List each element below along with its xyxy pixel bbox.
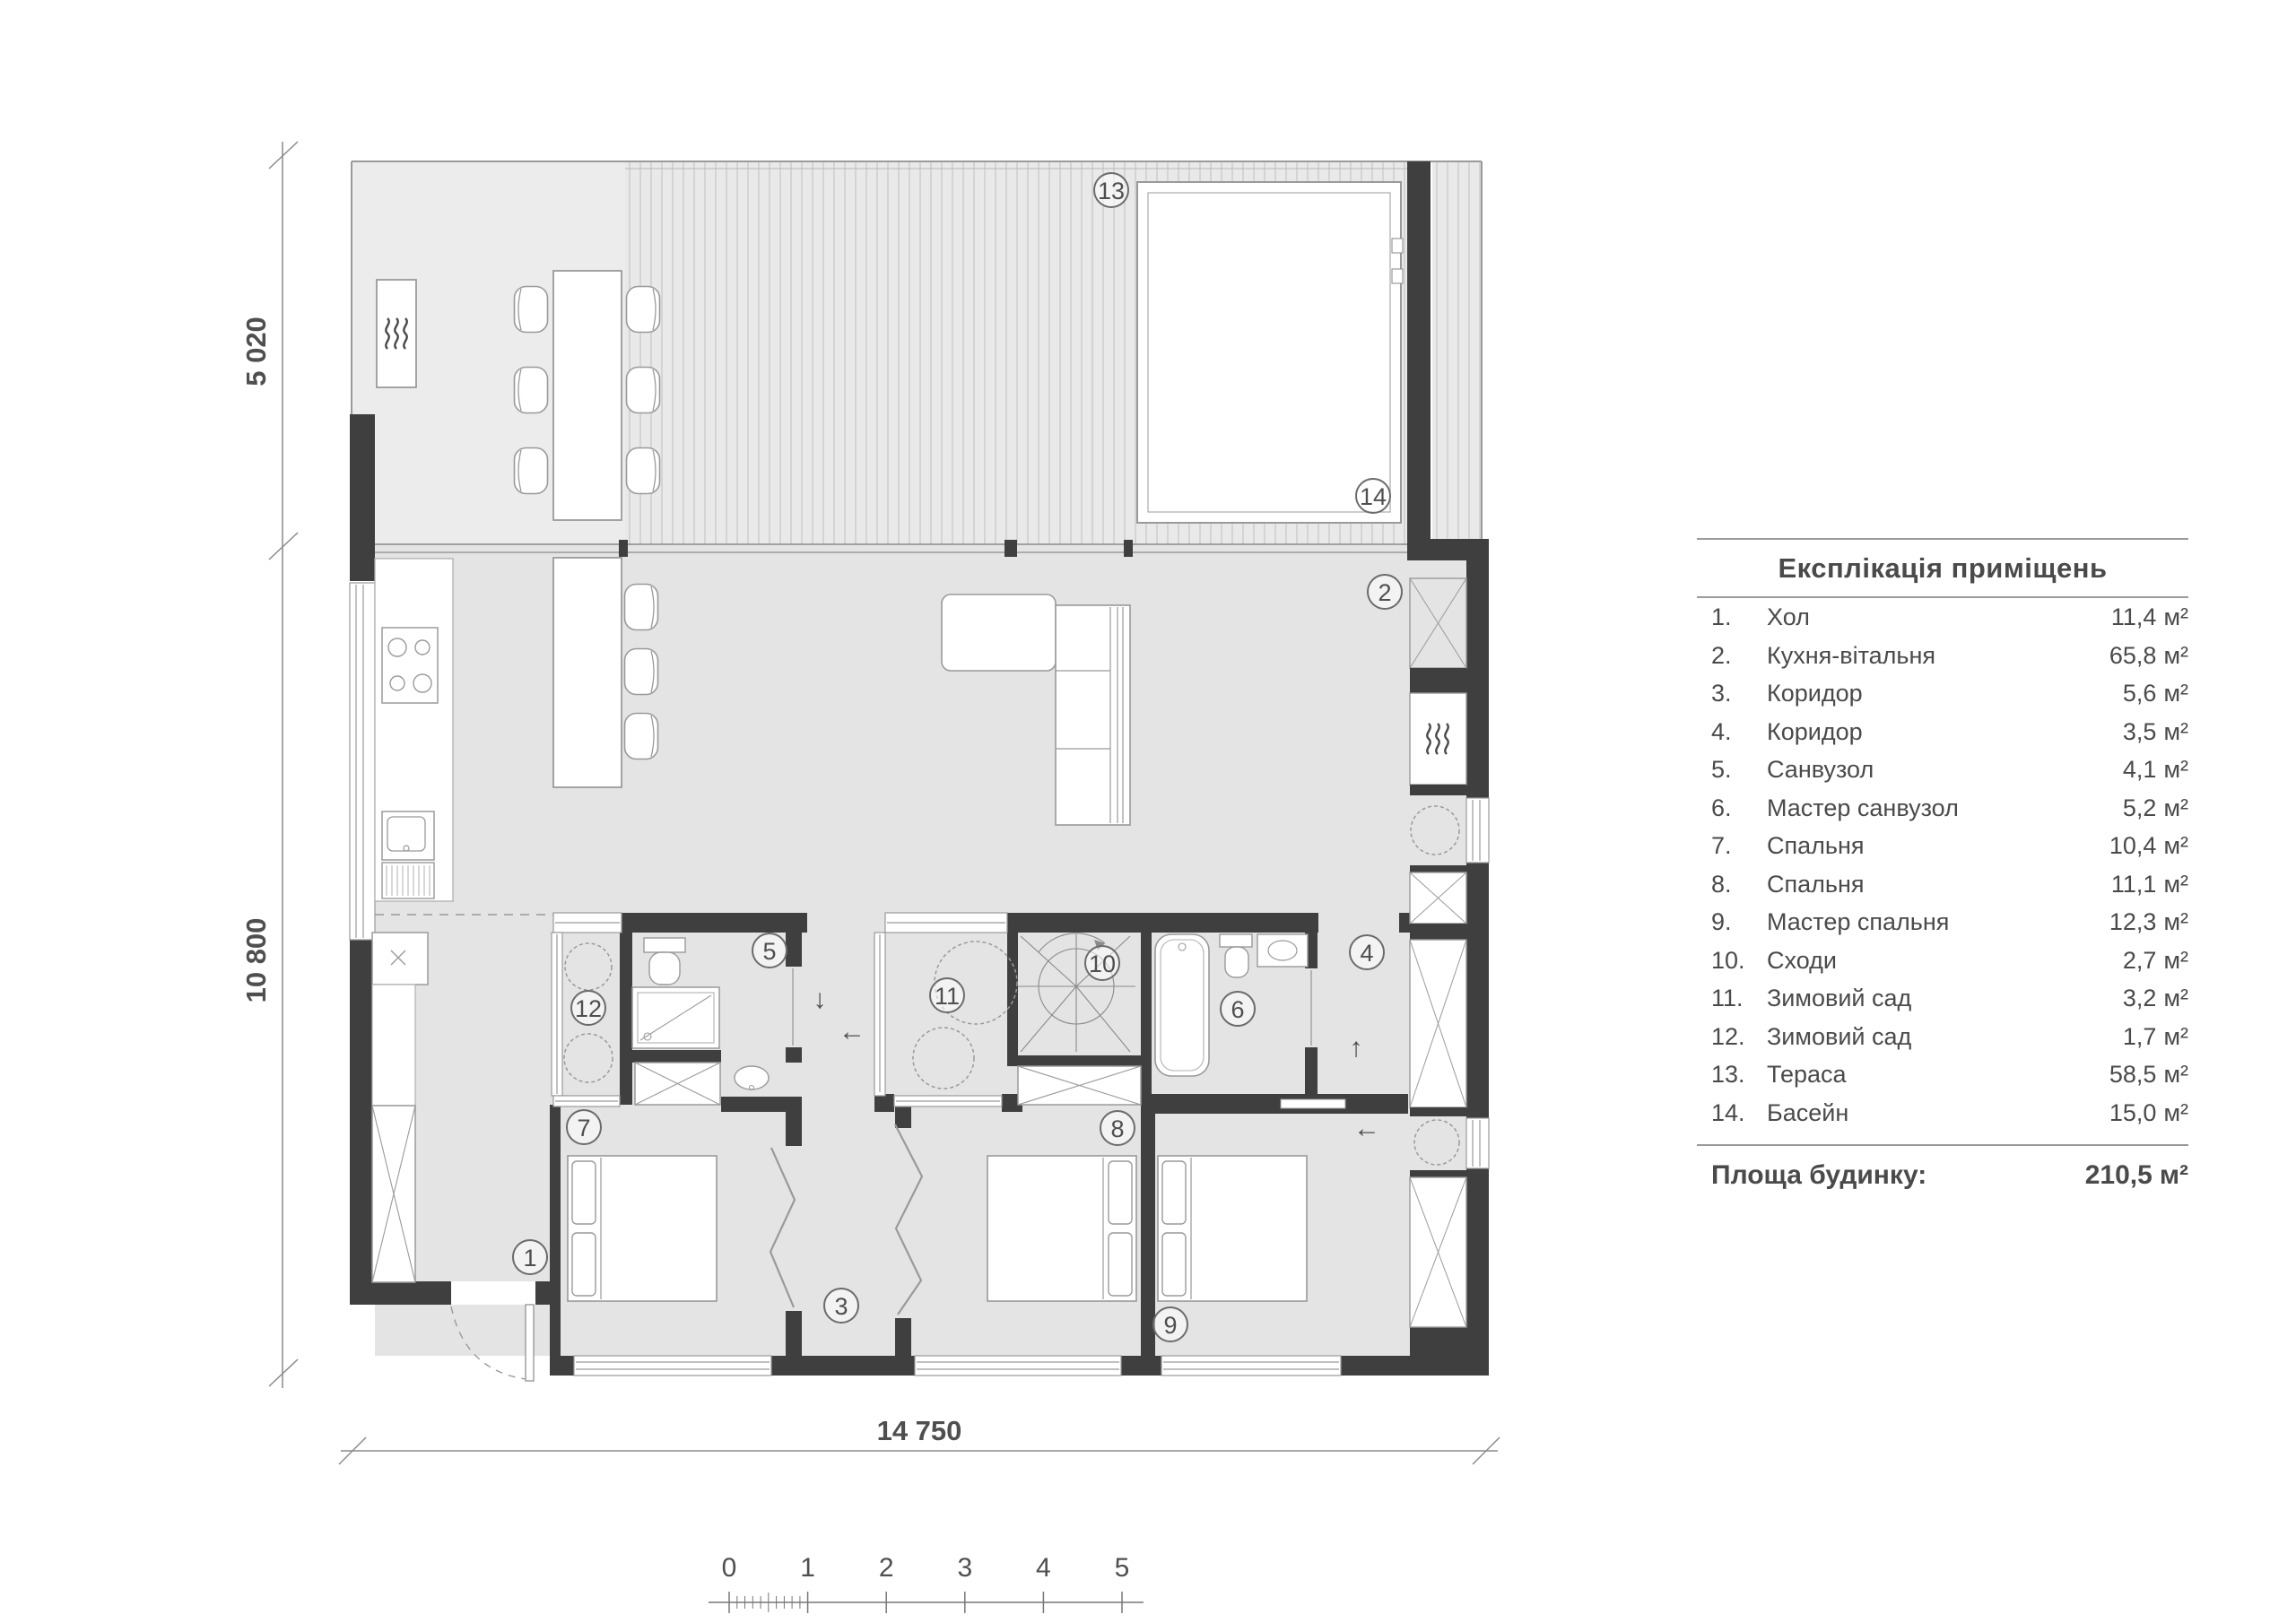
svg-text:↑: ↑ bbox=[1350, 1033, 1363, 1063]
legend-row: 1.Хол11,4м² bbox=[1697, 603, 2188, 642]
svg-text:4: 4 bbox=[1036, 1553, 1051, 1583]
floor-plan-sheet: ↓ ← ↑ ← 1 2 3 4 5 6 7 8 9 10 11 12 13 14… bbox=[0, 0, 2296, 1623]
svg-text:4: 4 bbox=[1360, 940, 1373, 967]
legend-row: 3.Коридор5,6м² bbox=[1697, 680, 2188, 718]
legend-row: 14.Басейн15,0м² bbox=[1697, 1099, 2188, 1138]
room-label-1: 1 bbox=[513, 1240, 547, 1274]
dim-label-5020: 5 020 bbox=[240, 317, 272, 386]
svg-text:5: 5 bbox=[762, 938, 776, 965]
kitchen-counter bbox=[375, 559, 453, 901]
legend-row: 8.Спальня11,1м² bbox=[1697, 871, 2188, 909]
legend-row: 5.Санвузол4,1м² bbox=[1697, 756, 2188, 794]
svg-text:1: 1 bbox=[523, 1245, 536, 1271]
room-label-14: 14 bbox=[1356, 479, 1390, 513]
svg-text:8: 8 bbox=[1110, 1115, 1124, 1142]
svg-text:6: 6 bbox=[1231, 996, 1244, 1023]
cooktop-icon bbox=[382, 628, 438, 703]
svg-text:2: 2 bbox=[1378, 579, 1391, 606]
toilet-icon bbox=[644, 938, 685, 985]
room-label-11: 11 bbox=[930, 978, 964, 1012]
legend-table: Експлікація приміщень 1.Хол11,4м² 2.Кухн… bbox=[1697, 538, 2188, 1191]
legend-row: 11.Зимовий сад3,2м² bbox=[1697, 985, 2188, 1023]
room-label-3: 3 bbox=[824, 1289, 858, 1323]
sink-icon bbox=[1257, 934, 1308, 967]
legend-title: Експлікація приміщень bbox=[1697, 540, 2188, 596]
grill-icon bbox=[377, 280, 416, 387]
svg-text:7: 7 bbox=[577, 1115, 590, 1141]
bed-room7 bbox=[568, 1156, 717, 1301]
room-label-13: 13 bbox=[1094, 173, 1128, 207]
svg-text:←: ← bbox=[1353, 1114, 1380, 1143]
bed-room9 bbox=[1158, 1156, 1307, 1301]
fireplace-icon bbox=[1410, 693, 1466, 785]
svg-text:12: 12 bbox=[575, 995, 602, 1022]
pool-ladder-icon bbox=[1392, 239, 1403, 253]
legend-row: 7.Спальня10,4м² bbox=[1697, 832, 2188, 871]
pool-ladder-icon bbox=[1392, 269, 1403, 283]
legend-row: 9.Мастер спальня12,3м² bbox=[1697, 908, 2188, 947]
svg-text:←: ← bbox=[839, 1017, 865, 1046]
dimension-left bbox=[269, 142, 298, 1388]
shower-icon bbox=[632, 987, 719, 1048]
svg-text:14: 14 bbox=[1360, 483, 1387, 510]
closet-x bbox=[635, 1063, 720, 1105]
pool bbox=[1137, 182, 1403, 523]
dining-table bbox=[553, 558, 658, 787]
legend-row: 4.Коридор3,5м² bbox=[1697, 718, 2188, 757]
room-label-10: 10 bbox=[1085, 946, 1119, 980]
legend-row: 12.Зимовий сад1,7м² bbox=[1697, 1023, 2188, 1062]
drainer-icon bbox=[382, 863, 434, 898]
kitchen-sink-icon bbox=[382, 811, 434, 860]
stairs-closet-x bbox=[1018, 1066, 1141, 1105]
scale-bar bbox=[709, 1592, 1144, 1613]
svg-text:9: 9 bbox=[1163, 1312, 1177, 1339]
svg-text:0: 0 bbox=[722, 1553, 737, 1583]
legend-row: 6.Мастер санвузол5,2м² bbox=[1697, 794, 2188, 833]
room-label-7: 7 bbox=[567, 1110, 601, 1144]
room-label-12: 12 bbox=[571, 991, 605, 1025]
right-wall-niches bbox=[1410, 578, 1466, 1327]
legend-row: 10.Сходи2,7м² bbox=[1697, 947, 2188, 985]
scale-bar-labels: 0 1 2 3 4 5 bbox=[722, 1553, 1130, 1583]
bathtub-icon bbox=[1155, 934, 1209, 1076]
room-label-8: 8 bbox=[1100, 1111, 1135, 1145]
room-label-4: 4 bbox=[1350, 935, 1384, 969]
bed-room8 bbox=[987, 1156, 1136, 1301]
svg-text:13: 13 bbox=[1098, 178, 1125, 204]
legend-row: 2.Кухня-вітальня65,8м² bbox=[1697, 642, 2188, 681]
svg-text:3: 3 bbox=[834, 1293, 848, 1320]
legend-rows: 1.Хол11,4м² 2.Кухня-вітальня65,8м² 3.Кор… bbox=[1697, 598, 2188, 1144]
svg-text:2: 2 bbox=[879, 1553, 894, 1583]
svg-text:1: 1 bbox=[800, 1553, 815, 1583]
hall-wardrobe bbox=[372, 1106, 415, 1282]
legend-row: 13.Тераса58,5м² bbox=[1697, 1061, 2188, 1099]
dim-label-10800: 10 800 bbox=[240, 918, 272, 1003]
legend-total: Площа будинку: 210,5м² bbox=[1697, 1146, 2188, 1191]
svg-text:11: 11 bbox=[935, 983, 960, 1010]
svg-text:↓: ↓ bbox=[813, 985, 827, 1014]
room-label-9: 9 bbox=[1153, 1307, 1187, 1341]
svg-text:3: 3 bbox=[957, 1553, 972, 1583]
dim-label-14750: 14 750 bbox=[877, 1415, 962, 1446]
outdoor-dining-table bbox=[515, 271, 660, 520]
room-label-5: 5 bbox=[752, 933, 787, 968]
sink-icon bbox=[735, 1066, 769, 1090]
sliding-door bbox=[1281, 1099, 1345, 1108]
room-label-2: 2 bbox=[1368, 575, 1402, 609]
room-label-6: 6 bbox=[1221, 992, 1255, 1026]
svg-text:10: 10 bbox=[1089, 950, 1116, 977]
svg-text:5: 5 bbox=[1115, 1553, 1130, 1583]
